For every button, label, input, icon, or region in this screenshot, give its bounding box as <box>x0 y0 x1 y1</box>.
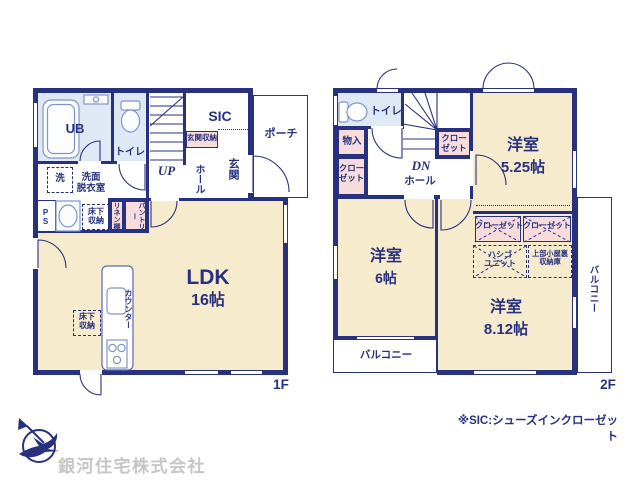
washroom-line1: 洗面 <box>68 172 114 183</box>
closet-line2: ゼット <box>336 173 367 183</box>
door-arc-ub <box>80 141 100 161</box>
window-arc-room525-top <box>483 63 534 89</box>
underfloor-line2: 収納 <box>82 216 110 225</box>
company-logo <box>12 416 64 472</box>
floor-plan-image: UB トイレ SIC 玄関収納 玄関 ホール ポーチ UP 洗 洗面 脱衣室 P… <box>0 0 640 480</box>
closet-line2: ゼット <box>438 143 470 153</box>
label-ps: PS <box>41 205 49 229</box>
label-underfloor-storage-ldk: 床下 収納 <box>73 312 101 331</box>
attic-line2: 収納庫 <box>527 258 573 266</box>
label-stairs-dn: DN <box>404 158 438 173</box>
door-arc-toilet-1f <box>119 164 145 190</box>
toilet-bowl-2f <box>347 103 367 121</box>
label-balcony-right: バルコニー <box>588 258 598 320</box>
room-label-525: 洋室 <box>497 137 549 156</box>
label-storage: 物入 <box>337 136 367 147</box>
door-arc-back <box>80 374 101 395</box>
sic-note: ※SIC:シューズインクローゼット <box>448 412 618 444</box>
room-label-washroom: 洗面 脱衣室 <box>68 172 114 194</box>
door-arc-ldk-left <box>38 240 66 268</box>
underfloor-line2: 収納 <box>73 321 101 330</box>
room-label-hall-1f: ホール <box>193 159 203 199</box>
toilet-tank-1f <box>121 101 140 110</box>
label-closet-stair: クロー ゼット <box>438 133 470 153</box>
door-arc-room6 <box>405 200 433 228</box>
room-label-porch: ポーチ <box>258 128 304 141</box>
label-ladder-unit: ハシゴ ユニット <box>473 250 527 269</box>
label-attic-storage: 上部小屋裏 収納庫 <box>527 250 573 267</box>
door-arc-hall-ldk <box>151 201 177 227</box>
label-closet-left: クロー ゼット <box>336 163 367 183</box>
company-name: 銀河住宅株式会社 <box>58 452 258 477</box>
closet-line1: クロー <box>336 163 367 173</box>
room-label-6-size: 6帖 <box>367 270 405 287</box>
label-linen-shelf: リネン棚 <box>113 202 120 230</box>
room-label-ub: UB <box>58 121 92 136</box>
door-arc-toilet-2f <box>372 128 402 158</box>
door-arc-entrance <box>253 156 289 192</box>
closet-line1: クロー <box>438 133 470 143</box>
room-label-sic: SIC <box>200 108 240 125</box>
window-arc-stair-top <box>377 69 397 89</box>
label-balcony: バルコニー <box>357 349 415 361</box>
label-stairs-up: UP <box>151 163 182 178</box>
stair-treads-2f <box>403 93 437 149</box>
room-label-toilet-1f: トイレ <box>113 147 147 159</box>
floor2-label: 2F <box>593 377 623 393</box>
ladder-line2: ユニット <box>473 259 527 268</box>
room-label-hall-2f: ホール <box>394 175 446 187</box>
room-label-525-size: 5.25帖 <box>491 159 555 177</box>
stair-treads-1f <box>150 97 183 160</box>
label-entrance-storage: 玄関収納 <box>186 134 218 143</box>
floor1-label: 1F <box>266 377 296 393</box>
logo-needle-head <box>18 418 28 430</box>
label-closet: クローゼット <box>523 221 571 230</box>
label-underfloor-storage: 床下 収納 <box>82 207 110 226</box>
door-arc-room812 <box>441 200 471 230</box>
room-label-812: 洋室 <box>480 299 532 318</box>
washroom-line2: 脱衣室 <box>68 183 114 194</box>
room-label-6: 洋室 <box>360 248 412 267</box>
label-pantry: パントリー <box>131 201 145 231</box>
ladder-line1: ハシゴ <box>473 250 527 259</box>
label-closet: クローゼット <box>475 221 521 230</box>
room-label-toilet-2f: トイレ <box>368 105 404 117</box>
label-counter: カウンター <box>124 283 132 335</box>
room-label-ldk-size: 16帖 <box>180 292 236 311</box>
room-label-entrance: 玄関 <box>227 150 238 188</box>
room-label-812-size: 8.12帖 <box>473 321 539 339</box>
plan-linework <box>0 0 640 480</box>
toilet-bowl-1f <box>122 110 140 132</box>
room-label-ldk: LDK <box>178 266 238 291</box>
